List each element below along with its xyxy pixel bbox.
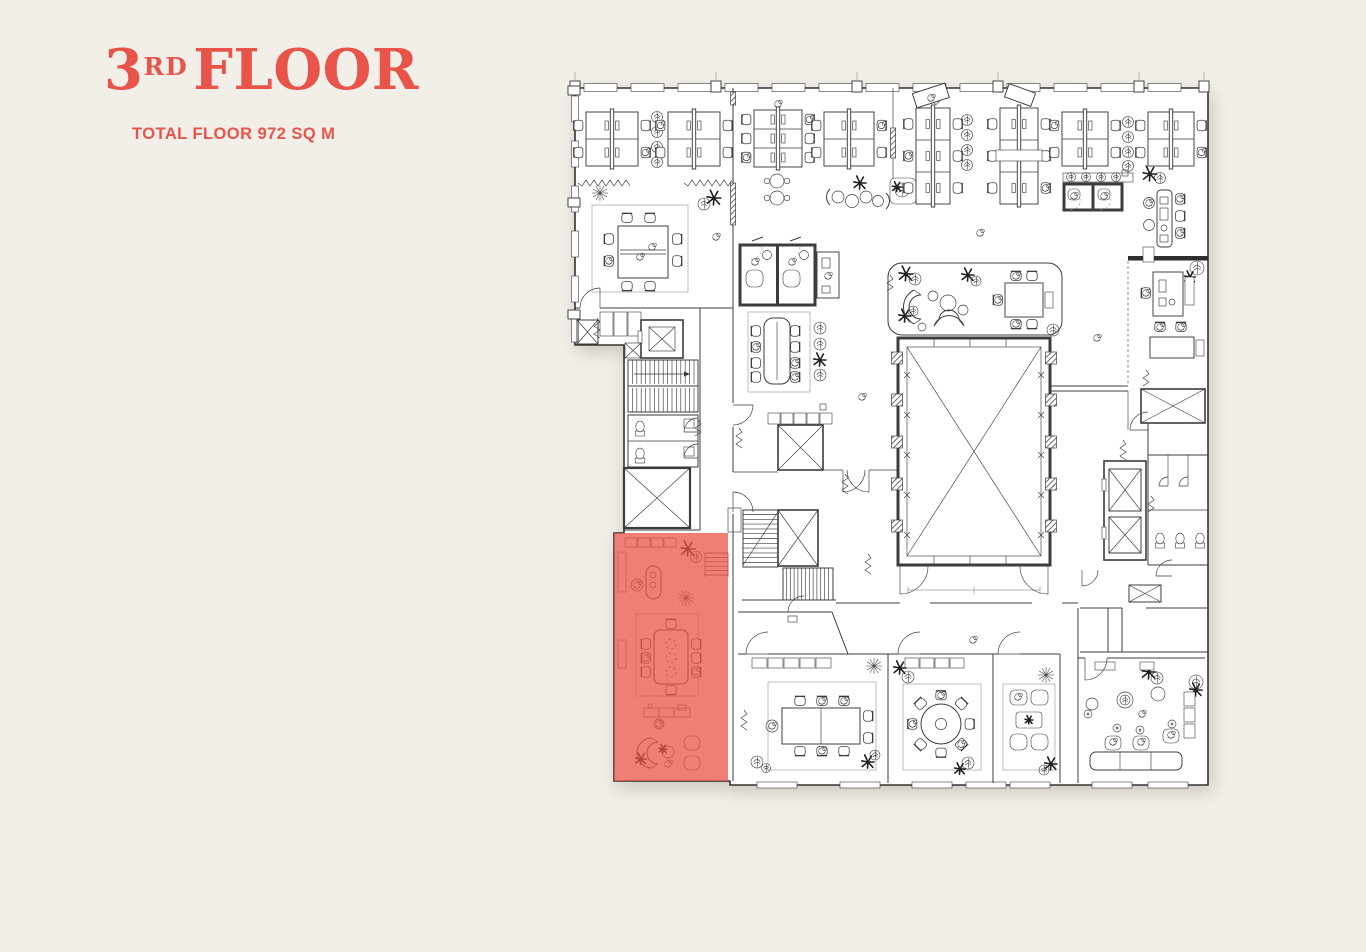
- highlighted-unit-overlay[interactable]: [614, 533, 728, 781]
- floor-plan: [0, 0, 1366, 952]
